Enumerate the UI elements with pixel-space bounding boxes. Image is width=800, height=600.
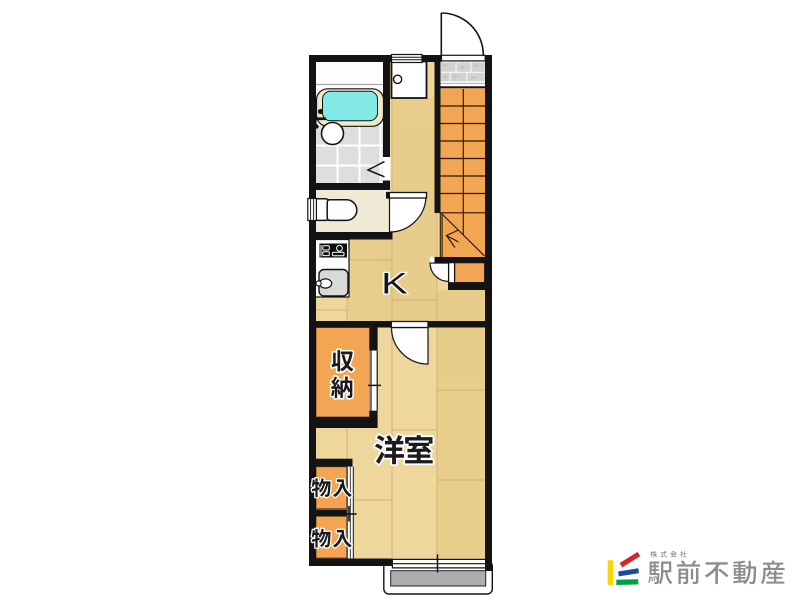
svg-text:K: K (381, 267, 408, 300)
